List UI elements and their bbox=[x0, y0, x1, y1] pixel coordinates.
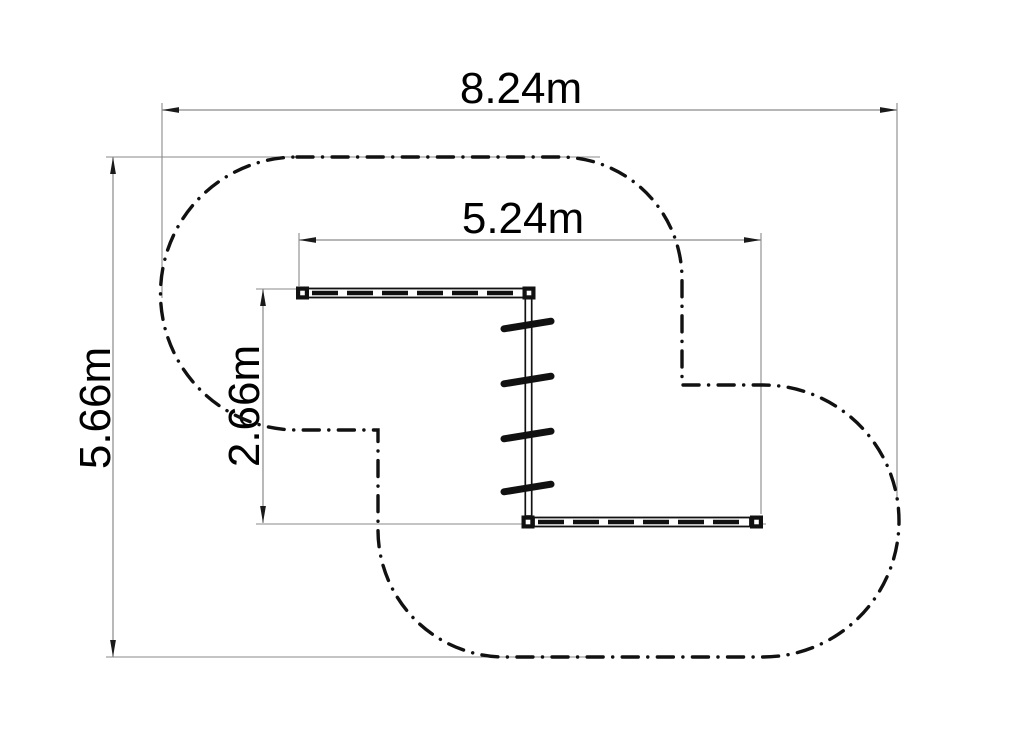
rung-1 bbox=[504, 321, 551, 329]
overall-height-arrow-top-icon bbox=[110, 157, 116, 174]
bottom-wall-bar bbox=[534, 518, 750, 527]
inner-height-label: 2.66m bbox=[220, 345, 269, 467]
post-bottom-left bbox=[522, 516, 535, 529]
overall-height-arrow-bottom-icon bbox=[110, 640, 116, 657]
rung-4 bbox=[504, 484, 551, 492]
rung-3 bbox=[504, 431, 551, 439]
technical-drawing: 8.24m 5.24m 5.66m 2.66m bbox=[0, 0, 1024, 754]
inner-height-arrow-top-icon bbox=[260, 289, 266, 306]
inner-width-arrow-left-icon bbox=[299, 237, 316, 243]
vertical-bar bbox=[525, 298, 531, 516]
inner-width-arrow-right-icon bbox=[744, 237, 761, 243]
post-top-right bbox=[523, 287, 536, 300]
rung-2 bbox=[504, 376, 551, 384]
overall-width-arrow-right-icon bbox=[880, 107, 897, 113]
equipment bbox=[296, 287, 763, 529]
overall-width-label: 8.24m bbox=[460, 64, 582, 113]
overall-height-label: 5.66m bbox=[71, 347, 120, 469]
inner-height-arrow-bottom-icon bbox=[260, 506, 266, 523]
overall-width-arrow-left-icon bbox=[162, 107, 179, 113]
top-wall-bar bbox=[308, 289, 524, 298]
post-bottom-right bbox=[750, 516, 763, 529]
post-top-left bbox=[296, 287, 309, 300]
inner-width-label: 5.24m bbox=[462, 194, 584, 243]
dimension-labels: 8.24m 5.24m 5.66m 2.66m bbox=[71, 64, 584, 469]
